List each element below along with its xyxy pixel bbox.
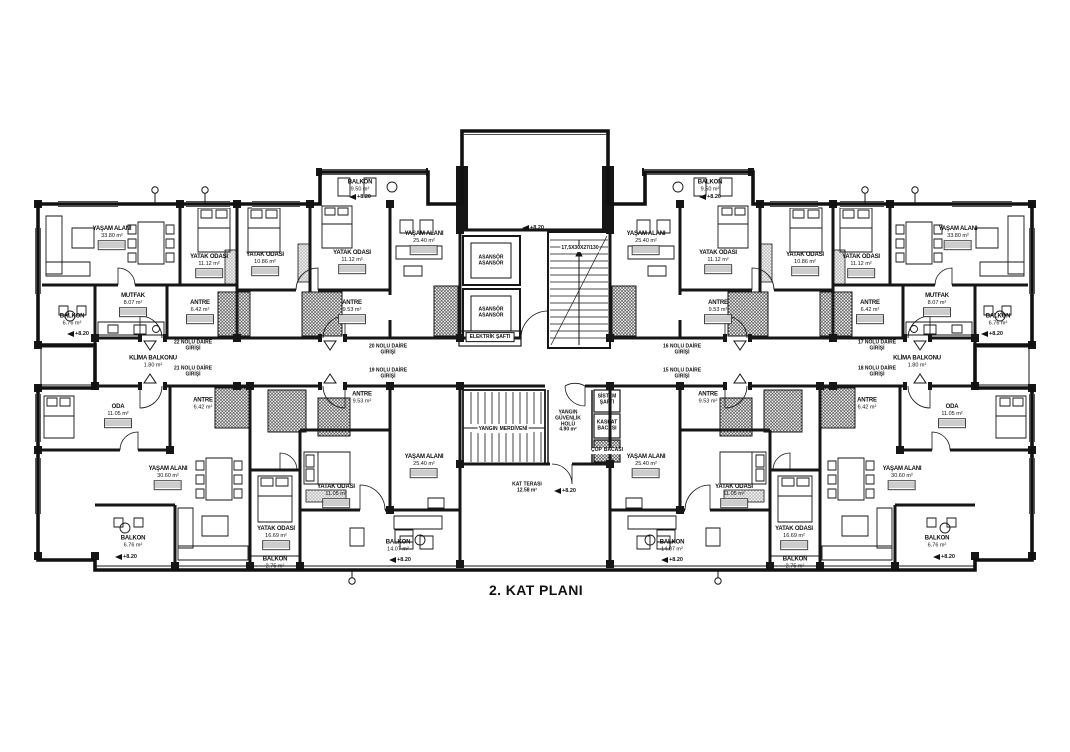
room-label: ANTRE9.53 m² bbox=[352, 392, 372, 405]
elevation-flag-icon bbox=[389, 557, 396, 563]
finish-spec-box bbox=[410, 245, 438, 255]
finish-spec-box bbox=[791, 266, 819, 276]
entrance-label: 22 NOLU DAİREGİRİŞİ bbox=[174, 340, 212, 352]
room-label: YAŞAM ALANI25.40 m² bbox=[627, 454, 666, 478]
finish-spec-box bbox=[251, 266, 279, 276]
room-label: ANTRE9.53 m² bbox=[338, 300, 366, 324]
room-label: YAŞAM ALANI33.80 m² bbox=[93, 226, 132, 250]
room-label: BALKON2.75 m² bbox=[263, 557, 287, 570]
entrance-label: 21 NOLU DAİREGİRİŞİ bbox=[174, 366, 212, 378]
fire-safety-hall-label: YANGINGÜVENLİKHOLÜ4.90 m² bbox=[555, 411, 581, 434]
finish-spec-box bbox=[195, 268, 223, 278]
room-label: ANTRE6.42 m² bbox=[857, 398, 877, 411]
elevation-marker: +8.20 bbox=[933, 554, 955, 560]
electric-shaft-label: ELEKTRİK ŞAFTI bbox=[466, 335, 515, 341]
finish-spec-box bbox=[847, 268, 875, 278]
floor-plan-drawing bbox=[0, 0, 1070, 752]
room-label: BALKON6.76 m² bbox=[986, 314, 1010, 327]
finish-spec-box bbox=[632, 245, 660, 255]
room-label: BALKON6.76 m² bbox=[925, 536, 949, 549]
room-label: ANTRE6.42 m² bbox=[193, 398, 213, 411]
floor-terrace-label: KAT TERASI12.58 m² bbox=[512, 482, 542, 494]
room-label: YAŞAM ALANI25.40 m² bbox=[405, 231, 444, 255]
room-label: BALKON2.75 m² bbox=[783, 557, 807, 570]
room-label: MUTFAK8.07 m² bbox=[923, 293, 951, 317]
plan-title: 2. KAT PLANI bbox=[489, 582, 583, 598]
finish-spec-box bbox=[923, 307, 951, 317]
room-label: YATAK ODASI11.05 m² bbox=[715, 484, 753, 508]
room-label: YATAK ODASI11.05 m² bbox=[317, 484, 355, 508]
room-label: YATAK ODASI10.86 m² bbox=[786, 252, 824, 276]
finish-spec-box bbox=[98, 240, 126, 250]
room-label: ANTRE6.42 m² bbox=[186, 300, 214, 324]
elevation-marker: +8.20 bbox=[349, 194, 371, 200]
cascade-shaft-label: KASKATBACASI bbox=[597, 420, 617, 432]
elevation-flag-icon bbox=[554, 488, 561, 494]
elevation-marker: +8.20 bbox=[699, 194, 721, 200]
finish-spec-box bbox=[119, 307, 147, 317]
room-label: YATAK ODASI10.86 m² bbox=[246, 252, 284, 276]
elevation-marker: +8.20 bbox=[522, 225, 544, 231]
room-label: ODA11.05 m² bbox=[104, 404, 132, 428]
finish-spec-box bbox=[338, 314, 366, 324]
finish-spec-box bbox=[338, 264, 366, 274]
bathroom-hatch bbox=[215, 286, 458, 436]
room-label: YAŞAM ALANI33.80 m² bbox=[939, 226, 978, 250]
finish-spec-box bbox=[154, 480, 182, 490]
room-label: YAŞAM ALANI30.60 m² bbox=[149, 466, 188, 490]
ac-balcony-label: KLİMA BALKONU1.80 m² bbox=[893, 356, 941, 369]
elevation-marker: +8.20 bbox=[661, 557, 683, 563]
room-label: BALKON6.76 m² bbox=[60, 314, 84, 327]
room-label: YAŞAM ALANI25.40 m² bbox=[627, 231, 666, 255]
ac-balcony-label: KLİMA BALKONU1.80 m² bbox=[129, 356, 177, 369]
room-label: YATAK ODASI11.12 m² bbox=[699, 250, 737, 274]
entrance-label: 15 NOLU DAİREGİRİŞİ bbox=[663, 368, 701, 380]
finish-spec-box bbox=[944, 240, 972, 250]
elevation-flag-icon bbox=[67, 331, 74, 337]
finish-spec-box bbox=[322, 498, 350, 508]
finish-spec-box bbox=[104, 418, 132, 428]
room-label: YATAK ODASI11.12 m² bbox=[333, 250, 371, 274]
entrance-label: 19 NOLU DAİREGİRİŞİ bbox=[369, 368, 407, 380]
finish-spec-box bbox=[938, 418, 966, 428]
finish-spec-box bbox=[888, 480, 916, 490]
finish-spec-box bbox=[720, 498, 748, 508]
room-label: YATAK ODASI16.69 m² bbox=[775, 526, 813, 550]
elevation-marker: +8.20 bbox=[389, 557, 411, 563]
room-label: BALKON9.50 m² bbox=[348, 180, 372, 193]
floor-plan-canvas: YAŞAM ALANI33.80 m² MUTFAK8.07 m² BALKON… bbox=[0, 0, 1070, 752]
room-label: BALKON14.07 m² bbox=[386, 540, 410, 553]
finish-spec-box bbox=[186, 314, 214, 324]
elevation-marker: +8.20 bbox=[67, 331, 89, 337]
stair-spec-label: 17,5X30X27/130 bbox=[560, 246, 599, 252]
elevator-label: ASANSÖRASANSÖR bbox=[478, 307, 503, 319]
elevation-flag-icon bbox=[981, 331, 988, 337]
room-label: YATAK ODASI11.12 m² bbox=[190, 254, 228, 278]
room-label: BALKON9.50 m² bbox=[698, 180, 722, 193]
elevation-marker: +8.20 bbox=[115, 554, 137, 560]
elevation-flag-icon bbox=[349, 194, 356, 200]
core bbox=[456, 129, 620, 568]
entrance-label: 17 NOLU DAİREGİRİŞİ bbox=[858, 340, 896, 352]
fire-stairs-label: YANGINMERDİVENİ bbox=[478, 427, 529, 433]
elevation-flag-icon bbox=[115, 554, 122, 560]
room-label: BALKON14.07 m² bbox=[660, 540, 684, 553]
elevator-label: ASANSÖRASANSÖR bbox=[478, 255, 503, 267]
finish-spec-box bbox=[410, 468, 438, 478]
room-label: ANTRE9.53 m² bbox=[698, 392, 718, 405]
room-label: ANTRE6.42 m² bbox=[856, 300, 884, 324]
entrance-label: 16 NOLU DAİREGİRİŞİ bbox=[663, 344, 701, 356]
entrance-label: 18 NOLU DAİREGİRİŞİ bbox=[858, 366, 896, 378]
elevation-flag-icon bbox=[933, 554, 940, 560]
entrance-label: 20 NOLU DAİREGİRİŞİ bbox=[369, 344, 407, 356]
room-label: YATAK ODASI16.69 m² bbox=[257, 526, 295, 550]
room-label: YAŞAM ALANI25.40 m² bbox=[405, 454, 444, 478]
room-label: ANTRE9.53 m² bbox=[704, 300, 732, 324]
elevation-marker: +8.20 bbox=[981, 331, 1003, 337]
system-shaft-label: SİSTEMŞAFTI bbox=[598, 394, 617, 406]
room-label: MUTFAK8.07 m² bbox=[119, 293, 147, 317]
room-label: YAŞAM ALANI30.60 m² bbox=[883, 466, 922, 490]
room-label: BALKON6.76 m² bbox=[121, 536, 145, 549]
room-label: YATAK ODASI11.12 m² bbox=[842, 254, 880, 278]
elevation-marker: +8.20 bbox=[554, 488, 576, 494]
finish-spec-box bbox=[780, 540, 808, 550]
elevation-flag-icon bbox=[522, 225, 529, 231]
finish-spec-box bbox=[632, 468, 660, 478]
elevation-flag-icon bbox=[699, 194, 706, 200]
finish-spec-box bbox=[704, 314, 732, 324]
garbage-chute-label: ÇÖPBACASI bbox=[590, 448, 624, 454]
room-label: ODA11.05 m² bbox=[938, 404, 966, 428]
finish-spec-box bbox=[704, 264, 732, 274]
finish-spec-box bbox=[856, 314, 884, 324]
wardrobe bbox=[225, 244, 346, 502]
finish-spec-box bbox=[262, 540, 290, 550]
elevation-flag-icon bbox=[661, 557, 668, 563]
